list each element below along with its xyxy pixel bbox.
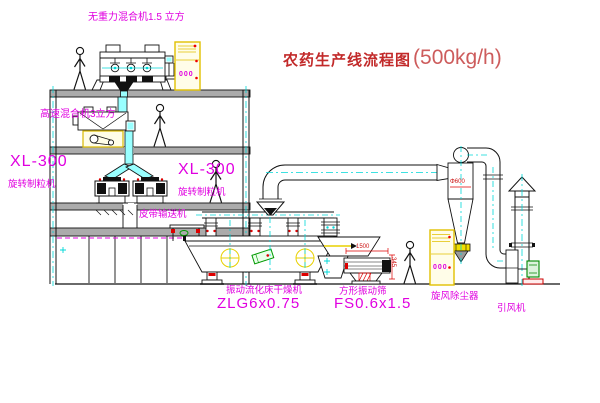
label-fan: 引风机 <box>497 304 526 314</box>
label-granulator-right-name: 旋转制粒机 <box>178 188 226 198</box>
label-granulator-left-model: XL-300 <box>10 154 68 170</box>
person-icon <box>154 104 166 146</box>
dim-cyclone-diameter: Φ600 <box>450 179 465 185</box>
rotary-granulator-left <box>95 177 129 203</box>
control-cabinet-1 <box>175 42 200 90</box>
label-sieve-model: FS0.6x1.5 <box>334 296 411 311</box>
title-text: 农药生产线流程图 <box>283 53 411 68</box>
label-granulator-right-model: XL-300 <box>178 162 236 178</box>
label-high-speed-mixer: 高速混合机3立方 <box>40 110 116 120</box>
control-cabinet-2 <box>430 230 454 285</box>
label-gravity-free-mixer: 无重力混合机1.5 立方 <box>88 13 185 23</box>
flow-diagram-screenshot: 农药生产线流程图 (500kg/h) 无重力混合机1.5 立方 高速混合机3立方… <box>0 0 600 403</box>
rotary-granulator-right <box>133 177 167 203</box>
label-belt-conveyor: 皮带输送机 <box>139 210 187 220</box>
exhaust-duct <box>257 165 452 216</box>
person-icon <box>74 47 86 89</box>
dim-sieve-length: 1500 <box>356 244 369 250</box>
page-title: 农药生产线流程图 (500kg/h) <box>283 47 502 68</box>
label-granulator-left-name: 旋转制粒机 <box>8 180 56 190</box>
gravity-free-mixer <box>92 45 176 97</box>
title-capacity: (500kg/h) <box>413 47 502 68</box>
dim-sieve-height: 345 <box>390 257 396 267</box>
cabinet1-display: 000 <box>179 71 194 78</box>
label-cyclone: 旋风除尘器 <box>431 292 479 302</box>
y-chute <box>105 164 153 179</box>
cabinet2-display: 000 <box>433 264 448 271</box>
label-dryer-model: ZLG6x0.75 <box>217 296 300 311</box>
fluid-bed-dryer <box>183 203 340 284</box>
person-icon <box>404 241 416 283</box>
induced-draft-fan <box>506 250 543 284</box>
